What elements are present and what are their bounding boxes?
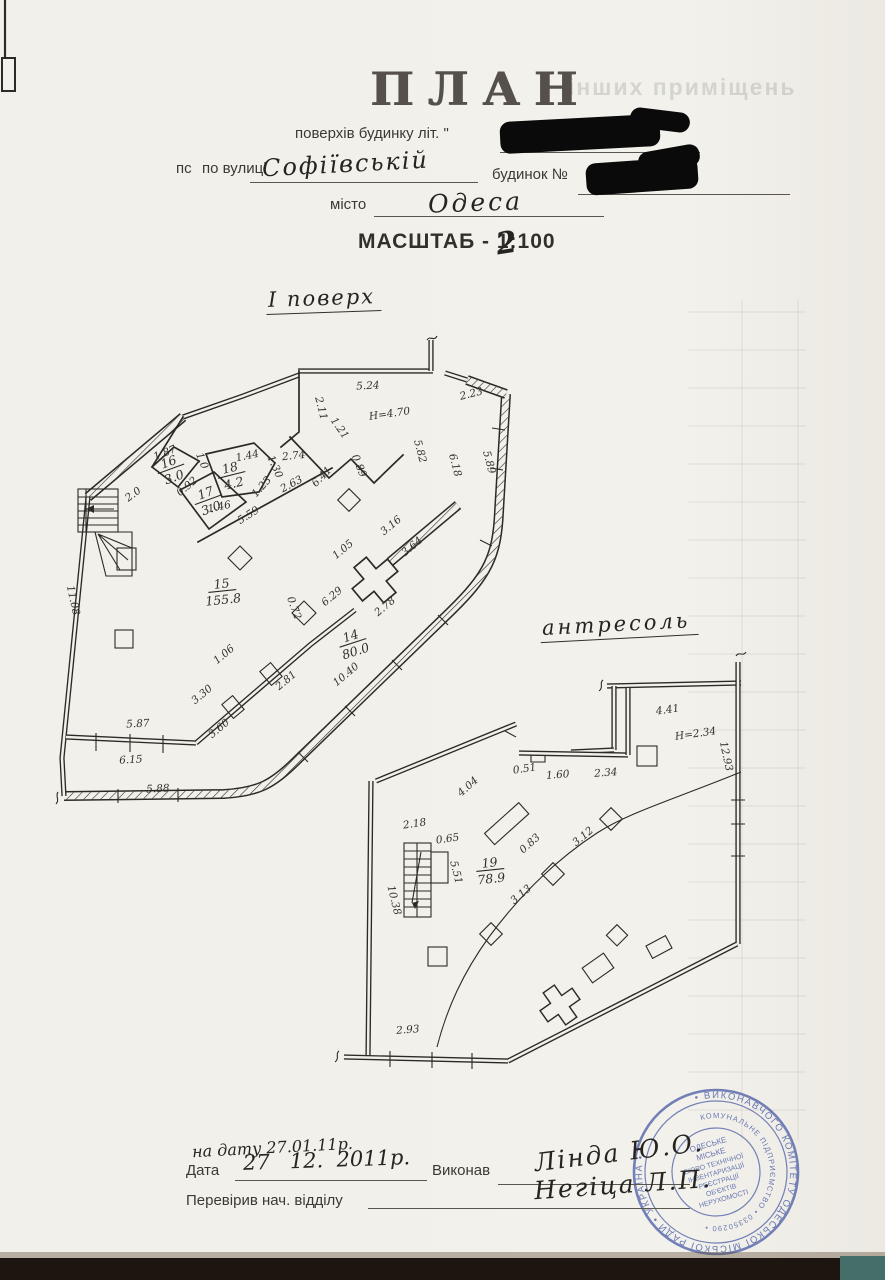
line1-label: поверхів будинку літ. " <box>295 125 449 142</box>
room-label: 1480.0 <box>335 624 371 662</box>
stairs-icon <box>404 843 448 917</box>
dimension-label: 5.24 <box>356 379 380 392</box>
bleed-through-grid <box>688 300 806 1140</box>
dimension-label: 0.65 <box>435 831 460 846</box>
dimension-label: 6.29 <box>319 584 345 608</box>
dimension-label: 1.44 <box>235 448 260 465</box>
dimension-label: 0.89 <box>349 453 369 479</box>
date-underline <box>235 1180 427 1181</box>
dimension-label: 2.63 <box>278 473 305 495</box>
scanned-floor-plan-page: 5.24H=4.702.111.212.235.826.185.890.892.… <box>0 0 885 1280</box>
plan1-first-floor: 5.24H=4.702.111.212.235.826.185.890.892.… <box>56 336 506 804</box>
dimension-label: 4.41 <box>654 702 680 717</box>
room-label: 1978.9 <box>475 854 506 888</box>
dimension-label: 2.93 <box>395 1023 420 1037</box>
dimension-label: 2.23 <box>458 385 485 403</box>
dimension-label: 6.18 <box>446 452 464 478</box>
column-icon <box>646 936 672 959</box>
room-label: 15155.8 <box>203 574 242 609</box>
dimension-label: 1.05 <box>330 537 356 561</box>
city-value: Одеса <box>428 186 524 218</box>
plan1-caption: І поверх <box>266 284 382 315</box>
column-icon <box>115 630 133 648</box>
executor-label: Виконав <box>432 1162 490 1179</box>
column-icon <box>637 746 657 766</box>
checked-underline <box>368 1208 690 1209</box>
dimension-label: 3.16 <box>378 513 404 537</box>
svg-text:19: 19 <box>481 854 498 871</box>
column-icon <box>338 489 361 512</box>
dimension-label: 0.72 <box>284 595 303 621</box>
svg-text:78.9: 78.9 <box>477 870 506 888</box>
dimension-label: H=4.70 <box>367 405 411 423</box>
line2-label: по вулиці <box>202 160 267 177</box>
column-icon <box>582 953 614 983</box>
dimension-label: H=2.34 <box>673 725 717 743</box>
dimension-label: 1.23 <box>249 474 274 500</box>
plan2-room-labels: 1978.9 <box>475 854 506 888</box>
dimension-label: 1.06 <box>211 642 237 666</box>
column-icon <box>228 546 252 570</box>
dimension-label: 0.83 <box>517 831 543 856</box>
line2-prefix: пс <box>176 160 192 177</box>
date-label: Дата <box>186 1162 219 1179</box>
beam-icon <box>485 803 529 845</box>
dimension-label: 3.30 <box>189 682 215 706</box>
checked-label: Перевірив нач. відділу <box>186 1192 343 1209</box>
dimension-label: 2.0 <box>122 485 144 505</box>
dimension-label: 2.11 <box>312 395 330 422</box>
svg-text:155.8: 155.8 <box>205 590 242 609</box>
dimension-label: 1.21 <box>328 415 351 441</box>
dimension-label: 5.87 <box>126 717 150 730</box>
dimension-label: 5.51 <box>447 859 464 885</box>
dimension-label: 5.89 <box>480 449 498 475</box>
dimension-label: 4.04 <box>455 774 481 799</box>
dimension-label: 5.82 <box>411 438 429 464</box>
line3-label: місто <box>330 196 366 213</box>
bleed-through-text: інших приміщень <box>568 74 828 101</box>
column-icon <box>600 808 623 831</box>
dimension-label: 2.78 <box>371 594 398 619</box>
dimension-label: 3.13 <box>508 882 534 906</box>
plan1-dimension-labels: 5.24H=4.702.111.212.235.826.185.890.892.… <box>64 379 498 795</box>
dimension-label: 6.15 <box>119 753 143 766</box>
dimension-label: 0.51 <box>512 761 537 776</box>
dimension-label: 3.60 <box>206 716 232 740</box>
dimension-label: 10.40 <box>331 660 362 689</box>
scale-label: МАСШТАБ - 1:100 <box>358 230 556 254</box>
dimension-label: 2.34 <box>593 766 618 780</box>
page-title: ПЛАН <box>370 62 591 116</box>
column-icon <box>428 947 447 966</box>
dimension-label: 2.18 <box>401 816 427 831</box>
dimension-label: 1.60 <box>546 768 570 782</box>
dimension-label: 2.74 <box>280 449 306 463</box>
plan2-mezzanine: 4.41H=2.3412.932.341.600.514.042.180.655… <box>335 652 746 1069</box>
line2-suffix: будинок № <box>492 166 568 183</box>
dimension-label: 5.88 <box>146 782 170 795</box>
svg-text:15: 15 <box>213 575 230 592</box>
dimension-label: 3.12 <box>570 824 596 848</box>
street-underline <box>250 182 478 183</box>
dimension-label: 10.38 <box>384 884 403 916</box>
column-icon <box>606 925 627 946</box>
